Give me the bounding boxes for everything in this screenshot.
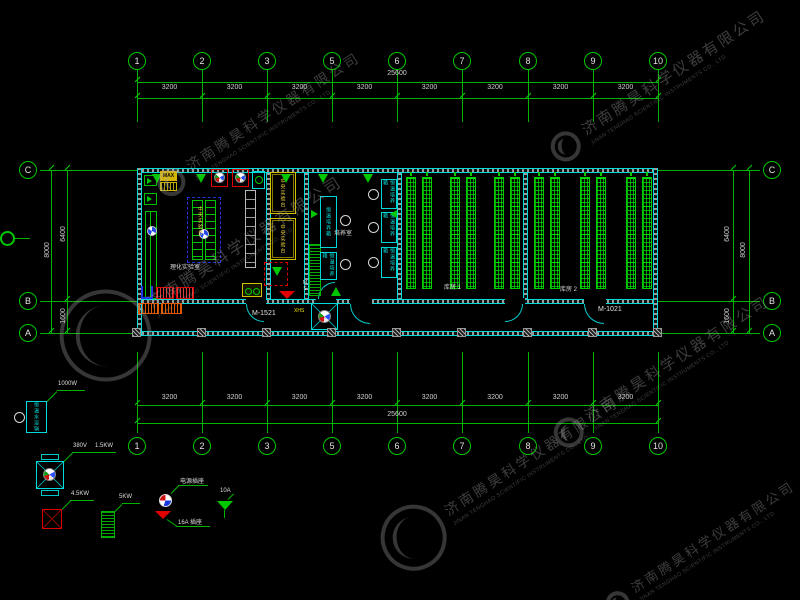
grid-bubble-bottom: 9 (584, 437, 602, 455)
storage-rack (422, 177, 432, 289)
equipment-icon (255, 176, 263, 184)
radiator (138, 303, 159, 314)
grid-extension-line (202, 352, 203, 433)
fan-icon (214, 172, 225, 183)
incubator-label: 恒温培养箱 (382, 248, 396, 277)
storage-rack (550, 177, 560, 289)
dim-left-1600: 1600 (60, 304, 68, 328)
leader-line (62, 501, 71, 510)
incubator-label: 恒温培养箱 (325, 207, 332, 237)
dim-segment-bottom: 3200 (215, 394, 255, 402)
grid-bubble-bottom: 8 (519, 437, 537, 455)
shape (281, 174, 291, 183)
grid-bubble-top: 9 (584, 52, 602, 70)
legend-label-power-socket: 电源插座 (180, 476, 204, 485)
room-label-lab: 理化实验室 (170, 262, 200, 271)
rack-tick (646, 172, 648, 176)
company-logo-icon (368, 492, 459, 583)
dim-right-8000: 8000 (740, 238, 748, 262)
leader-line (115, 504, 123, 512)
fume-unit: 中央实验台 (270, 218, 296, 260)
grid-bubble-bottom: 6 (388, 437, 406, 455)
rack-tick (630, 172, 632, 176)
watermark: 济南腾昊科学仪器有限公司 JINAN TENGHAO SCIENTIFIC IN… (600, 476, 800, 600)
socket-triangle (279, 291, 295, 299)
storage-rack (534, 177, 544, 289)
room-label-incubation: 培养室 (334, 228, 352, 237)
legend-16a-triangle (155, 511, 171, 519)
room-label-storage2: 库房 2 (560, 284, 577, 293)
leader-line (72, 452, 116, 453)
rack-tick (600, 172, 602, 176)
dim-segment-top: 3200 (475, 84, 515, 92)
legend-heater (101, 511, 115, 538)
grid-bubble-top: 8 (519, 52, 537, 70)
grid-bubble-top: 3 (258, 52, 276, 70)
shape (331, 287, 341, 296)
wall-south-rooms (137, 299, 658, 304)
dim-line-right (733, 170, 734, 333)
grid-bubble-top: 1 (128, 52, 146, 70)
column (327, 328, 336, 337)
leader-line (228, 493, 234, 499)
leader-line (122, 503, 140, 504)
dim-segment-bottom: 3200 (345, 394, 385, 402)
fume-unit-label: 中央实验台 (280, 224, 287, 254)
watermark-company-cn: 济南腾昊科学仪器有限公司 (627, 476, 798, 597)
storage-rack (494, 177, 504, 289)
duct (41, 454, 59, 460)
grid-extension-line (397, 352, 398, 433)
rack-tick (454, 172, 456, 176)
leader-line (70, 500, 94, 501)
red-equipment (176, 287, 194, 299)
grid-extension-line (593, 352, 594, 433)
grid-bubble-right-c: C (763, 161, 781, 179)
leader-line (64, 453, 73, 462)
storage-rack (466, 177, 476, 289)
legend-10a-cone (217, 501, 233, 510)
rack-tick (410, 172, 412, 176)
column (588, 328, 597, 337)
column (523, 328, 532, 337)
watermark: 济南腾昊科学仪器有限公司 JINAN TENGHAO SCIENTIFIC IN… (368, 377, 637, 584)
incubator: 恒温培养箱 (320, 252, 337, 280)
radiator (161, 303, 182, 314)
leader-line (57, 390, 85, 391)
stool (368, 189, 379, 200)
legend-water-bath: 恒温水浴锅 (26, 401, 47, 433)
door-label-m1021: M-1021 (598, 306, 622, 313)
red-equipment (156, 287, 174, 299)
dim-total-bottom: 25600 (367, 411, 427, 419)
company-logo-icon (545, 126, 586, 167)
dim-right-1600: 1600 (724, 304, 732, 328)
legend-label-380v: 380V (73, 443, 87, 449)
grid-bubble-bottom: 3 (258, 437, 276, 455)
drain-icon (272, 267, 282, 276)
door-label-m1521: M-1521 (252, 310, 276, 317)
grid-bubble-bottom: 10 (649, 437, 667, 455)
storage-rack (642, 177, 652, 289)
legend-power-socket-icon (159, 494, 172, 507)
leader-line (176, 526, 210, 527)
door-arc (505, 304, 523, 322)
dim-segment-top: 3200 (215, 84, 255, 92)
column (132, 328, 141, 337)
grid-extension-line (332, 352, 333, 433)
incubator: 恒温培养箱 (381, 247, 397, 278)
incubator: 恒温培养箱 (381, 179, 397, 209)
grid-bubble-bottom: 5 (323, 437, 341, 455)
rack-tick (426, 172, 428, 176)
cad-floor-plan-canvas: 济南腾昊科学仪器有限公司 JINAN TENGHAO SCIENTIFIC IN… (0, 0, 800, 600)
dim-segment-top: 3200 (280, 84, 320, 92)
rack-tick (538, 172, 540, 176)
dim-left-8000: 8000 (44, 238, 52, 262)
dim-line-bottom (137, 423, 658, 424)
legend-label-10a: 10A (220, 488, 231, 494)
sink (141, 286, 153, 299)
partition (397, 173, 402, 299)
dim-segment-bottom: 3200 (475, 394, 515, 402)
cart-wheel (253, 288, 260, 295)
legend-water-bath-label: 恒温水浴锅 (33, 402, 40, 432)
cabinet-hatch (160, 182, 177, 191)
rack-tick (584, 172, 586, 176)
cone-stem (224, 510, 225, 518)
stool (368, 222, 379, 233)
watermark: 济南腾昊科学仪器有限公司 JINAN TENGHAO SCIENTIFIC IN… (548, 290, 777, 454)
column (197, 328, 206, 337)
cart-wheel (245, 288, 252, 295)
dim-segment-bottom: 3200 (280, 394, 320, 402)
storage-rack (596, 177, 606, 289)
legend-label-5kw: 5KW (119, 494, 132, 500)
grid-bubble-bottom: 2 (193, 437, 211, 455)
legend-socket-box (42, 509, 62, 529)
stool (368, 257, 379, 268)
grid-bubble-top: 10 (649, 52, 667, 70)
grid-bubble-left-a: A (19, 324, 37, 342)
island-bench-label: 中央实验台 (197, 206, 204, 254)
grid-bubble-top: 6 (388, 52, 406, 70)
dim-total-top: 25600 (367, 70, 427, 78)
vent-icon (147, 196, 152, 202)
column (457, 328, 466, 337)
dim-line-bottom (137, 405, 658, 406)
watermark-company-en: JINAN TENGHAO SCIENTIFIC INSTRUMENTS CO.… (638, 494, 800, 600)
dim-segment-top: 3200 (606, 84, 646, 92)
incubator-label: 恒温培养箱 (382, 180, 396, 208)
fan-icon (235, 172, 246, 183)
shape (363, 174, 373, 183)
rack-tick (498, 172, 500, 176)
storage-rack (626, 177, 636, 289)
rack-tick (514, 172, 516, 176)
door-arc (350, 304, 370, 324)
legend-label-1000w: 1000W (58, 381, 77, 387)
dim-line-top (137, 98, 658, 99)
shape (318, 174, 328, 183)
storage-rack (580, 177, 590, 289)
grid-bubble-top: 5 (323, 52, 341, 70)
shape (196, 174, 206, 183)
storage-rack (510, 177, 520, 289)
dim-left-6400: 6400 (60, 222, 68, 246)
wall-bench (245, 190, 256, 268)
partition (523, 173, 528, 299)
grid-extension-line (528, 352, 529, 433)
company-logo-icon (601, 586, 634, 600)
dim-line-right (749, 170, 750, 333)
fire-hydrant-label: XHS (294, 308, 304, 314)
rack-tick (470, 172, 472, 176)
column (392, 328, 401, 337)
grid-bubble-right-b: B (763, 292, 781, 310)
section-marker-line (14, 238, 30, 239)
grid-bubble-bottom: 1 (128, 437, 146, 455)
column (262, 328, 271, 337)
dim-segment-bottom: 3200 (541, 394, 581, 402)
duct (41, 490, 59, 496)
grid-bubble-top: 7 (453, 52, 471, 70)
shape (390, 210, 397, 218)
grid-bubble-left-b: B (19, 292, 37, 310)
dim-segment-top: 3200 (410, 84, 450, 92)
watermark-company-cn: 济南腾昊科学仪器有限公司 (577, 4, 770, 139)
incubator-label: 恒温培养箱 (322, 253, 336, 279)
dim-segment-bottom: 3200 (150, 394, 190, 402)
shape (311, 210, 318, 218)
fan-icon (43, 468, 56, 481)
section-marker (0, 231, 15, 246)
legend-label-4p5kw: 4.5KW (71, 491, 89, 497)
dim-right-6400: 6400 (724, 222, 732, 246)
grid-bubble-bottom: 7 (453, 437, 471, 455)
storage-rack (450, 177, 460, 289)
legend-label-1p5kw: 1.5KW (95, 443, 113, 449)
dim-segment-top: 3200 (541, 84, 581, 92)
stool (340, 215, 351, 226)
dim-segment-bottom: 3200 (606, 394, 646, 402)
stool (340, 259, 351, 270)
equipment-dial (147, 226, 157, 236)
max-cabinet: MAX (160, 171, 177, 181)
incubator: 恒温培养箱 (320, 196, 337, 248)
watermark-company-cn: 济南腾昊科学仪器有限公司 (440, 393, 622, 521)
wall-east (653, 168, 658, 336)
legend-dial (14, 412, 25, 423)
grid-bubble-right-a: A (763, 324, 781, 342)
grid-extension-line (267, 352, 268, 433)
room-label-storage1: 库房 1 (444, 282, 461, 291)
dim-segment-top: 3200 (150, 84, 190, 92)
watermark-company-en: JINAN TENGHAO SCIENTIFIC INSTRUMENTS CO.… (452, 411, 626, 527)
fan-icon (318, 310, 331, 323)
dim-segment-bottom: 3200 (410, 394, 450, 402)
grid-bubble-left-c: C (19, 161, 37, 179)
leader-line (178, 485, 208, 486)
legend-label-16a: 16A 插座 (178, 517, 202, 526)
dim-segment-top: 3200 (345, 84, 385, 92)
rack-tick (554, 172, 556, 176)
column (653, 328, 662, 337)
grid-extension-line (462, 352, 463, 433)
grid-bubble-top: 2 (193, 52, 211, 70)
leader-line (47, 391, 58, 402)
door-tag-ms: MS (302, 280, 308, 292)
dim-line-top (137, 82, 658, 83)
storage-rack (406, 177, 416, 289)
leader-line (171, 485, 179, 493)
